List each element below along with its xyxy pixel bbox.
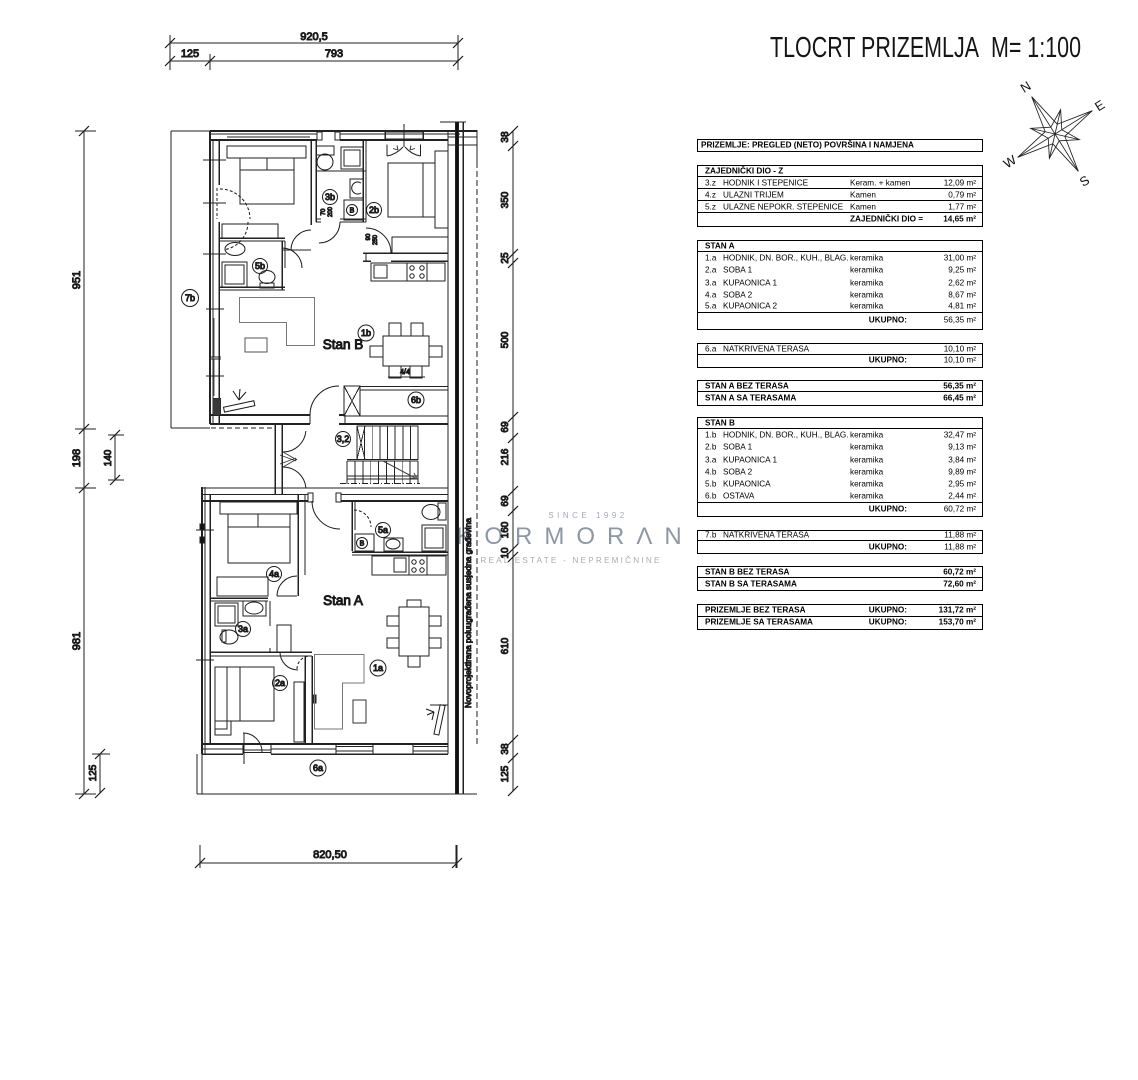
svg-text:951: 951 — [71, 271, 83, 289]
svg-text:Novoprojektirana poluugrađena: Novoprojektirana poluugrađena susjedna g… — [463, 518, 473, 708]
svg-text:90: 90 — [366, 233, 372, 240]
svg-text:70: 70 — [321, 208, 327, 215]
svg-text:69: 69 — [500, 421, 511, 433]
svg-text:216: 216 — [500, 448, 511, 465]
svg-text:125: 125 — [88, 764, 99, 781]
svg-text:350: 350 — [500, 191, 511, 208]
svg-text:140: 140 — [103, 449, 114, 466]
svg-text:200: 200 — [328, 206, 334, 217]
svg-text:4/4: 4/4 — [400, 369, 410, 376]
svg-text:125: 125 — [500, 765, 511, 782]
svg-text:5b: 5b — [255, 261, 265, 271]
svg-text:1a: 1a — [373, 663, 383, 673]
svg-text:38: 38 — [500, 743, 511, 755]
svg-text:610: 610 — [500, 637, 511, 654]
svg-text:5a: 5a — [378, 525, 388, 535]
svg-text:4a: 4a — [269, 569, 279, 579]
svg-text:2b: 2b — [369, 205, 379, 215]
svg-text:E: E — [1092, 97, 1108, 114]
svg-text:6b: 6b — [411, 395, 421, 405]
svg-text:7b: 7b — [185, 293, 195, 303]
svg-text:38: 38 — [500, 131, 511, 143]
svg-text:820,50: 820,50 — [313, 849, 347, 861]
svg-text:3a: 3a — [238, 624, 248, 634]
svg-text:B: B — [360, 541, 365, 548]
svg-text:S: S — [1077, 172, 1093, 189]
svg-text:N: N — [1018, 78, 1034, 96]
svg-text:10: 10 — [500, 547, 511, 559]
svg-text:3b: 3b — [325, 192, 335, 202]
svg-text:3,2: 3,2 — [337, 434, 350, 444]
svg-text:25: 25 — [500, 252, 511, 264]
svg-text:500: 500 — [500, 331, 511, 348]
svg-text:W: W — [1001, 152, 1020, 172]
svg-text:981: 981 — [71, 632, 83, 650]
svg-text:B: B — [350, 208, 355, 215]
svg-text:250: 250 — [373, 234, 379, 245]
svg-text:6a: 6a — [313, 763, 323, 773]
svg-text:2a: 2a — [275, 678, 285, 688]
svg-text:198: 198 — [71, 449, 83, 467]
svg-text:Stan A: Stan A — [323, 593, 363, 608]
svg-text:TLOCRT PRIZEMLJA M= 1:100: TLOCRT PRIZEMLJA M= 1:100 — [770, 32, 1081, 64]
svg-text:1b: 1b — [361, 328, 371, 338]
svg-text:160: 160 — [500, 521, 511, 538]
svg-text:Stan B: Stan B — [323, 337, 364, 352]
svg-text:69: 69 — [500, 495, 511, 507]
